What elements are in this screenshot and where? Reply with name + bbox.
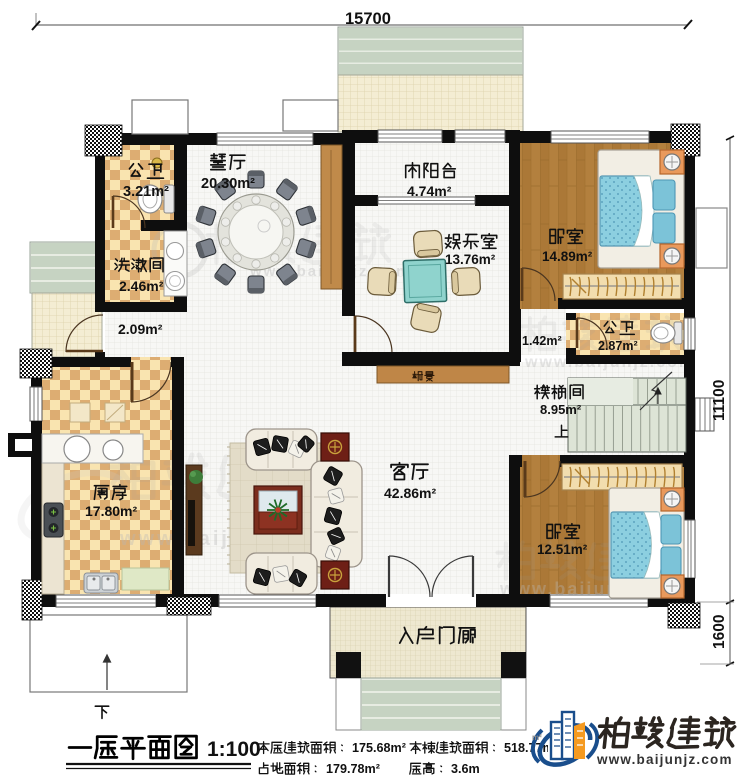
svg-text:3.6m: 3.6m	[451, 762, 480, 776]
svg-text:13.76m²: 13.76m²	[445, 252, 496, 267]
svg-text:17.80m²: 17.80m²	[85, 503, 137, 519]
svg-text:14.89m²: 14.89m²	[542, 249, 593, 264]
svg-text:8.95m²: 8.95m²	[540, 402, 582, 417]
svg-text:www.baijunjz.com: www.baijunjz.com	[596, 752, 733, 767]
svg-text:1600: 1600	[711, 615, 728, 649]
svg-text:20.30m²: 20.30m²	[201, 176, 255, 192]
svg-text:2.46m²: 2.46m²	[119, 278, 164, 294]
svg-text:4.74m²: 4.74m²	[407, 183, 452, 199]
svg-text:179.78m²: 179.78m²	[326, 762, 380, 776]
svg-text:11100: 11100	[711, 380, 728, 421]
svg-text:2.87m²: 2.87m²	[598, 339, 638, 353]
svg-text:1:100: 1:100	[207, 738, 261, 761]
svg-text:15700: 15700	[345, 10, 391, 28]
svg-text:42.86m²: 42.86m²	[384, 485, 436, 501]
svg-text:2.09m²: 2.09m²	[118, 321, 163, 337]
svg-text:12.51m²: 12.51m²	[537, 542, 588, 557]
svg-text:3.21m²: 3.21m²	[123, 184, 169, 200]
svg-text:1.42m²: 1.42m²	[522, 334, 562, 348]
svg-text:175.68m²: 175.68m²	[352, 741, 406, 755]
svg-text:m²: m²	[532, 733, 542, 742]
